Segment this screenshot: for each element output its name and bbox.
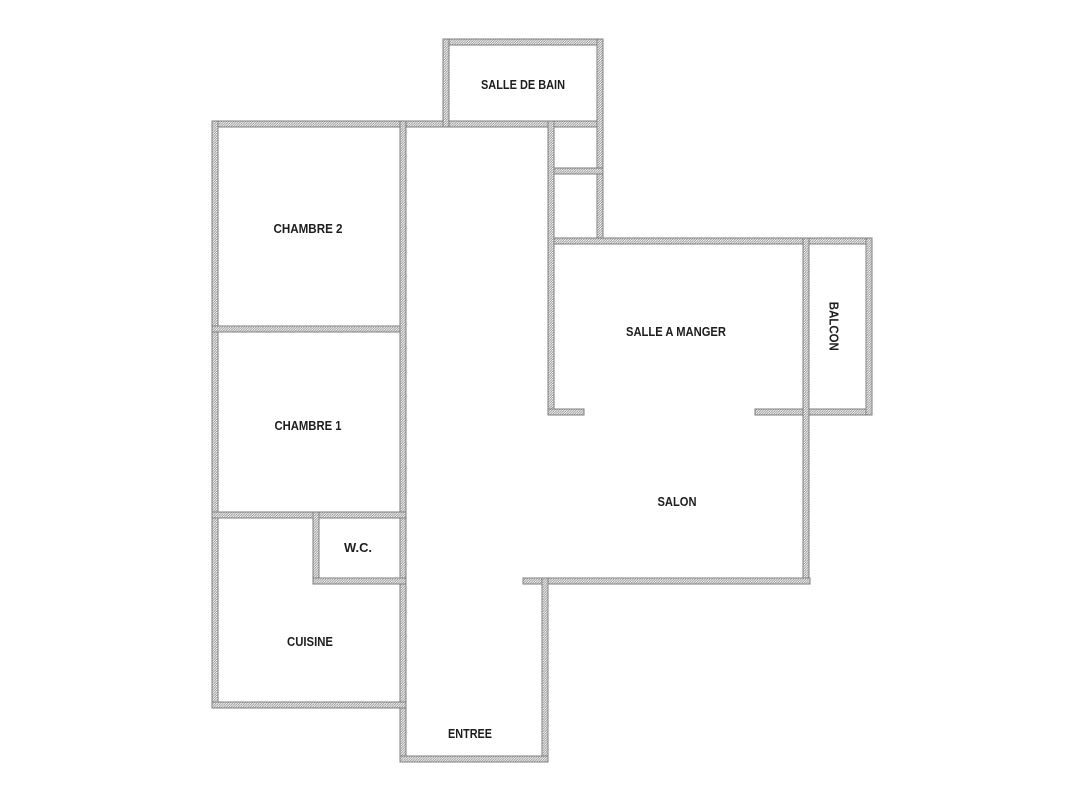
svg-text:CHAMBRE 1: CHAMBRE 1 <box>275 419 342 433</box>
svg-text:SALON: SALON <box>658 495 697 509</box>
svg-text:BALCON: BALCON <box>827 302 841 351</box>
svg-text:ENTREE: ENTREE <box>448 727 492 741</box>
svg-text:SALLE A MANGER: SALLE A MANGER <box>626 325 726 339</box>
svg-text:SALLE DE BAIN: SALLE DE BAIN <box>481 78 565 92</box>
svg-text:CHAMBRE 2: CHAMBRE 2 <box>274 222 343 236</box>
svg-text:CUISINE: CUISINE <box>287 635 333 649</box>
svg-text:W.C.: W.C. <box>344 541 372 555</box>
